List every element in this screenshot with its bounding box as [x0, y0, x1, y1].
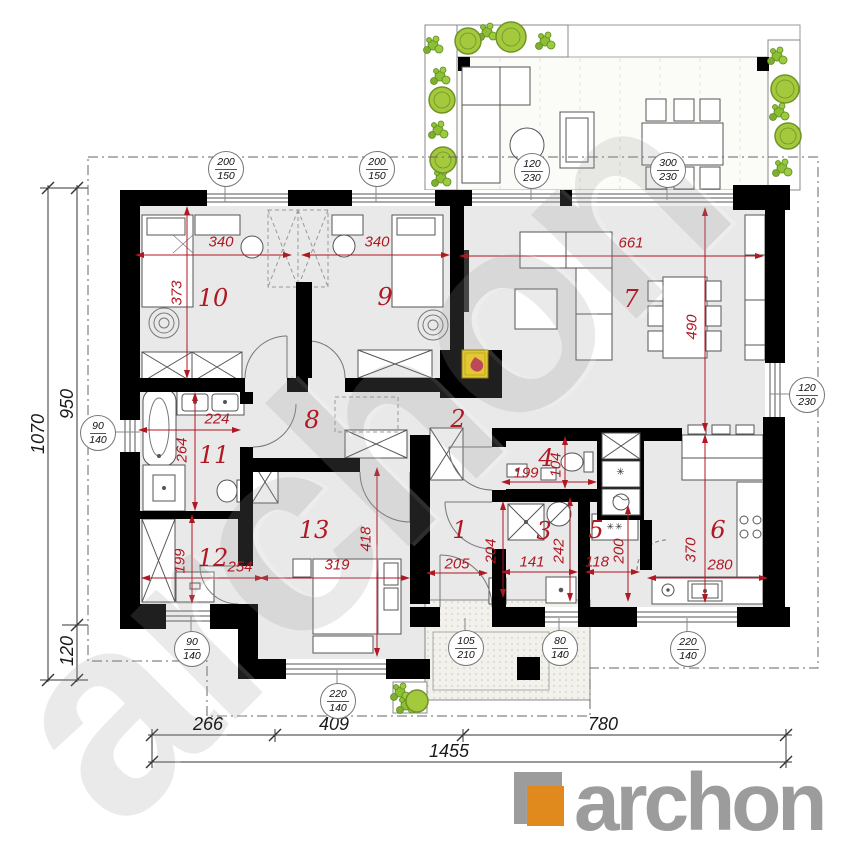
room-label-3: 3 [536, 519, 551, 543]
dim-label: 200 [612, 538, 627, 563]
floor-plan-page: archon 10 9 7 8 2 11 12 13 1 3 4 5 6 340… [0, 0, 853, 853]
window-size-badge: 80140 [542, 630, 578, 666]
window-size-badge: 120230 [514, 153, 550, 189]
room-label-5: 5 [588, 518, 603, 542]
door-size-badge: 105210 [448, 630, 484, 666]
dim-label: 340 [208, 235, 233, 250]
total-width-label: 1455 [429, 742, 469, 760]
archon-logo: archon [514, 772, 823, 829]
dim-label: 242 [552, 538, 567, 563]
dim-label: 199 [513, 466, 538, 481]
dim-label: 373 [170, 280, 185, 305]
small-depth-label: 120 [58, 636, 76, 666]
dim-label: 224 [204, 412, 229, 427]
room-label-7: 7 [623, 287, 638, 311]
window-size-badge: 300230 [650, 152, 686, 188]
room-label-10: 10 [198, 286, 229, 310]
room-label-6: 6 [710, 518, 725, 542]
dim-label: 199 [173, 548, 188, 573]
window-size-badge: 200150 [359, 151, 395, 187]
room-label-1: 1 [452, 518, 467, 542]
window-size-badge: 90140 [174, 631, 210, 667]
room-label-11: 11 [199, 443, 230, 467]
dim-label: 104 [549, 452, 564, 477]
room-label-12: 12 [198, 546, 229, 570]
window-size-badge: 220140 [320, 683, 356, 719]
room-label-9: 9 [377, 285, 392, 309]
total-depth-label: 1070 [29, 414, 47, 454]
dim-label: 280 [707, 558, 732, 573]
bottom-dim-label: 780 [588, 715, 618, 733]
window-size-badge: 120230 [789, 377, 825, 413]
bottom-dim-label: 266 [193, 715, 223, 733]
dim-label: 254 [227, 560, 252, 575]
window-size-badge: 220140 [670, 631, 706, 667]
dim-label: 141 [519, 555, 544, 570]
dim-label: 661 [618, 236, 643, 251]
archon-logo-mark-icon [514, 772, 562, 824]
room-label-2: 2 [450, 407, 465, 431]
floor-plan-drawing [0, 0, 853, 853]
dim-label: 264 [175, 437, 190, 462]
main-depth-label: 950 [58, 389, 76, 419]
room-label-13: 13 [299, 518, 330, 542]
archon-logo-text: archon [574, 778, 823, 829]
dim-label: 490 [685, 314, 700, 339]
dim-label: 418 [359, 526, 374, 551]
dim-label: 204 [484, 538, 499, 563]
appliance-star-icon: ✳ [616, 468, 625, 478]
window-size-badge: 200150 [208, 151, 244, 187]
window-size-badge: 90140 [80, 415, 116, 451]
dim-label: 370 [684, 537, 699, 562]
room-label-8: 8 [304, 408, 319, 432]
washer-stars-icon: ✳✳ [606, 523, 623, 532]
dim-label: 340 [364, 235, 389, 250]
fireplace-icon [462, 350, 488, 378]
dim-label: 319 [324, 558, 349, 573]
dim-label: 118 [585, 555, 609, 570]
dim-label: 205 [444, 557, 469, 572]
